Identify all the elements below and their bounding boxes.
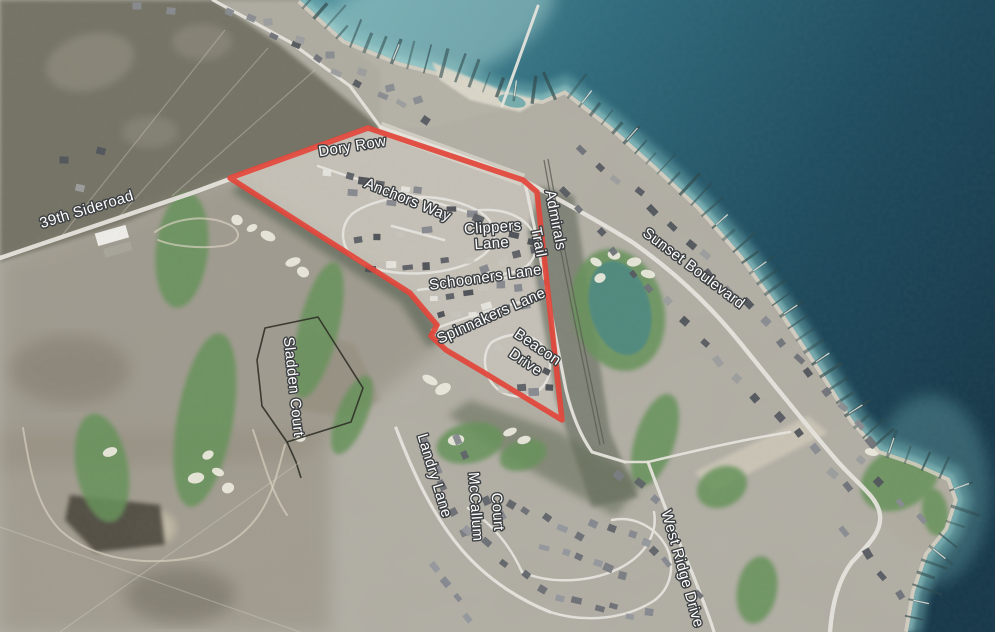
street-label-mccallum-court-2: Court [488, 492, 508, 532]
aerial-map: 39th Sideroad Dory Row Anchors Way Clipp… [0, 0, 995, 632]
street-label-clippers-lane-2: Lane [474, 234, 510, 253]
map-viewport[interactable]: 39th Sideroad Dory Row Anchors Way Clipp… [0, 0, 995, 632]
